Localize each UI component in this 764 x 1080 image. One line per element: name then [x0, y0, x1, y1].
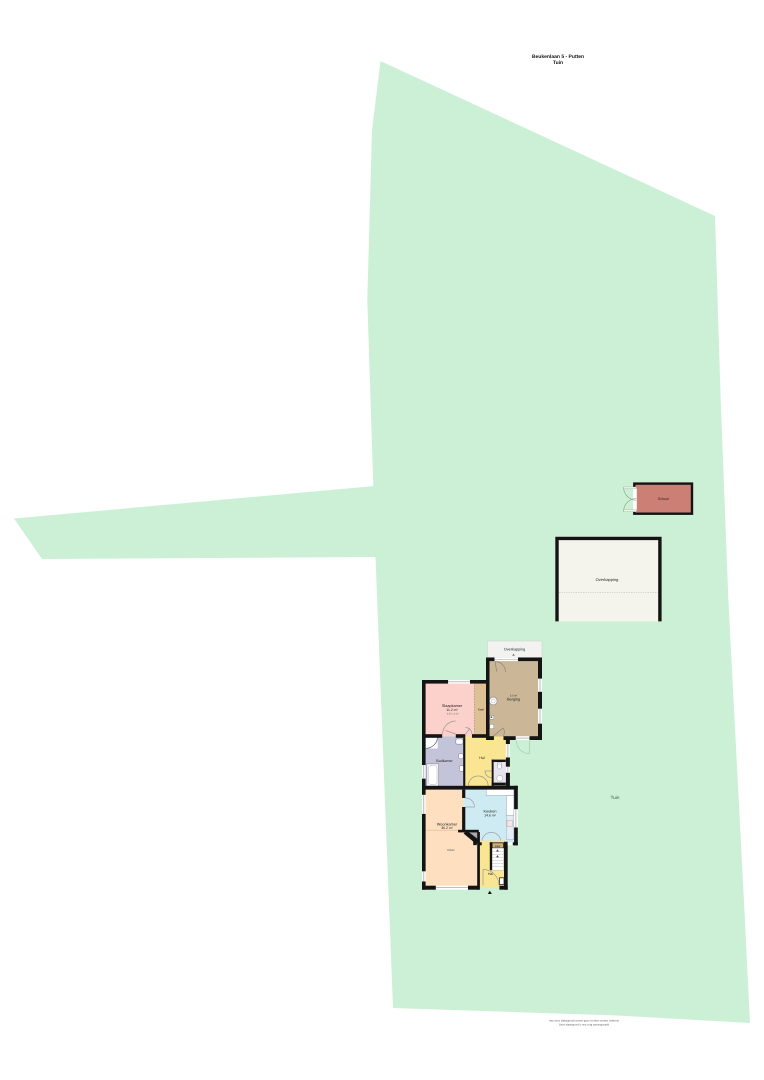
svg-text:Schuur: Schuur: [658, 497, 670, 501]
svg-text:36.2 m²: 36.2 m²: [441, 826, 453, 830]
svg-text:Aan deze plattegrond kunnen ge: Aan deze plattegrond kunnen geen rechten…: [549, 1020, 619, 1023]
svg-text:11.2 m²: 11.2 m²: [446, 708, 458, 712]
svg-text:Deze plattegrond is met zorg s: Deze plattegrond is met zorg samengestel…: [559, 1024, 610, 1027]
svg-text:Badkamer: Badkamer: [436, 759, 453, 763]
svg-text:Kast: Kast: [495, 845, 500, 848]
svg-text:14.6 m²: 14.6 m²: [484, 813, 496, 817]
svg-text:Kast: Kast: [478, 707, 484, 711]
svg-text:Overkapping: Overkapping: [596, 577, 619, 582]
svg-text:Erker: Erker: [447, 848, 454, 852]
svg-text:Tuin: Tuin: [611, 795, 620, 800]
svg-text:Tuin: Tuin: [553, 60, 563, 66]
svg-text:3.95 x 3.40: 3.95 x 3.40: [447, 713, 459, 716]
svg-text:Berging: Berging: [507, 698, 520, 702]
svg-text:Slaapkamer: Slaapkamer: [442, 704, 463, 708]
svg-text:Overkapping: Overkapping: [504, 648, 526, 652]
svg-text:Hal: Hal: [479, 756, 485, 760]
